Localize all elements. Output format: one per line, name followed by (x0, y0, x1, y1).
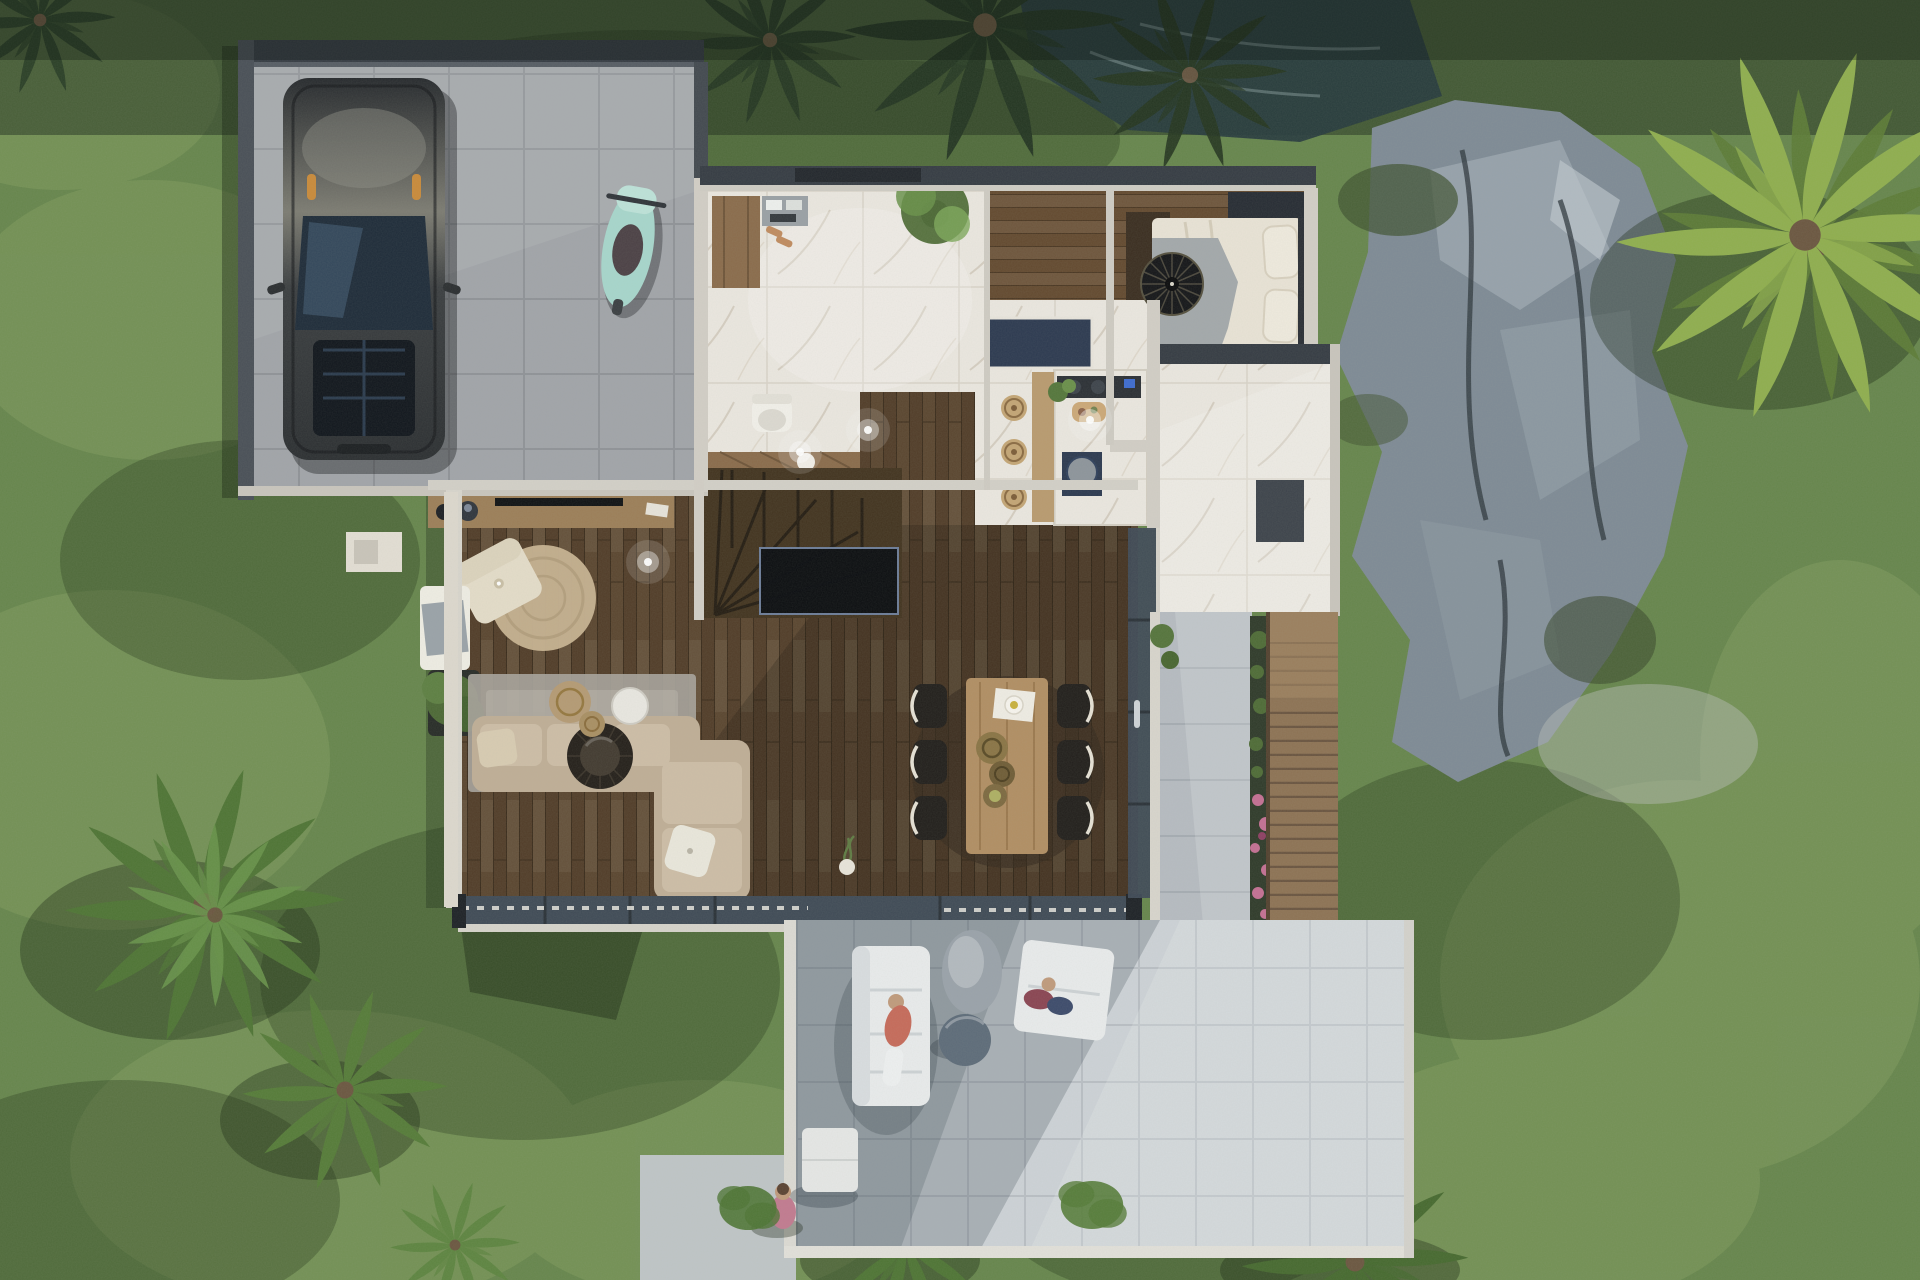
grain-overlay (0, 0, 1920, 1280)
floor-plan-render (0, 0, 1920, 1280)
vignette-top (0, 0, 1920, 60)
